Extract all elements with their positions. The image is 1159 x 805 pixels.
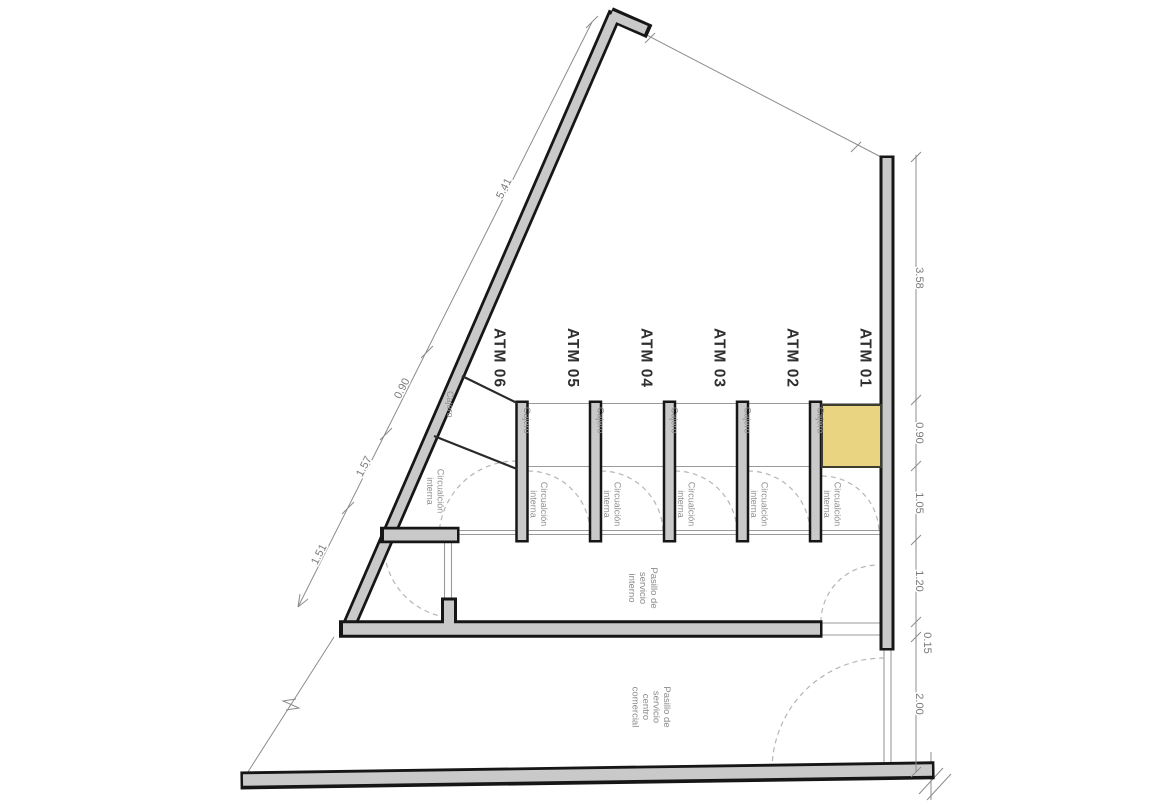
left-dim-label-1-51: 1.51 <box>309 542 329 567</box>
door-swing-atm06 <box>439 461 516 538</box>
circulation-label-atm04-line1: Circualción <box>613 482 623 527</box>
boundary-break-symbol <box>283 699 299 710</box>
right-dim-label-1-20: 1.20 <box>913 570 925 591</box>
dimension-chain-left: 5.41 0.90 1.57 1.51 <box>298 16 598 607</box>
circulation-label-atm06-line2: interna <box>425 477 435 505</box>
internal-corridor-label-line2: servicio <box>637 572 648 604</box>
walls <box>241 13 935 781</box>
circulation-label-atm03-line2: interna <box>676 490 686 518</box>
internal-corridor-label-line1: Pasillo de <box>648 567 659 608</box>
circulation-label-atm01-line2: interna <box>822 490 832 518</box>
dimension-chain-right: 3.58 0.90 1.05 1.20 0.15 2.00 <box>911 152 933 777</box>
cajero-label-atm01: Cajero <box>816 407 826 434</box>
right-dim-label-0-90: 0.90 <box>913 422 925 443</box>
circulation-label-atm02-line2: interna <box>749 490 759 518</box>
left-dim-tick-1 <box>421 346 433 358</box>
top-boundary-line <box>616 19 881 157</box>
left-dim-label-1-57: 1.57 <box>354 454 374 479</box>
atm06-upper-boundary <box>462 376 517 403</box>
cajero-label-atm04: Cajero <box>596 407 606 434</box>
cajero-label-atm03: Cajero <box>670 407 680 434</box>
atm-04-label: ATM 04 <box>638 328 655 388</box>
cajero-label-atm06: Cajero <box>445 391 455 418</box>
lower-left-boundary-line <box>246 637 334 775</box>
right-dim-label-3-58: 3.58 <box>913 267 925 288</box>
atm06-lower-boundary <box>434 436 517 469</box>
atm-06-label: ATM 06 <box>491 328 508 388</box>
left-dim-tick-0 <box>586 16 598 28</box>
atm-05-label: ATM 05 <box>564 328 581 388</box>
atm-01-highlight[interactable] <box>822 405 881 467</box>
mall-corridor-label-line2: servicio <box>651 691 662 723</box>
door-swing-mall-corridor <box>772 658 884 770</box>
right-dim-label-0-15: 0.15 <box>921 632 933 653</box>
circulation-label-atm03-line1: Circualción <box>687 482 697 527</box>
cajero-label-atm05: Cajero <box>522 407 532 434</box>
circulation-label-atm06-line1: Circualción <box>436 469 446 514</box>
atm-03-label: ATM 03 <box>711 328 728 388</box>
mall-corridor-label-line3: centro <box>640 694 651 720</box>
left-dim-label-0-90: 0.90 <box>392 376 412 401</box>
right-dim-label-1-05: 1.05 <box>913 492 925 513</box>
atm-02-label: ATM 02 <box>784 328 801 388</box>
left-dim-tick-3 <box>342 502 354 514</box>
atm-01-label: ATM 01 <box>857 328 874 388</box>
circulation-label-atm02-line1: Circualción <box>760 482 770 527</box>
cajero-label-atm02: Cajero <box>743 407 753 434</box>
floor-plan-canvas: 5.41 0.90 1.57 1.51 3.58 0.90 1.05 1.20 … <box>0 0 1159 805</box>
circulation-label-atm05-line1: Circualción <box>539 482 549 527</box>
mall-corridor-label-line4: comercial <box>630 687 641 728</box>
right-dim-label-2-00: 2.00 <box>913 693 925 714</box>
left-dim-tick-2 <box>380 428 392 440</box>
circulation-label-atm01-line1: Circualción <box>833 482 843 527</box>
atm-labels: ATM 06 ATM 05 ATM 04 ATM 03 ATM 02 ATM 0… <box>491 328 874 388</box>
circulation-label-atm04-line2: interna <box>602 490 612 518</box>
left-dim-label-5-41: 5.41 <box>494 176 514 201</box>
room-labels: Cajero Cajero Cajero Cajero Cajero Cajer… <box>425 391 843 728</box>
internal-corridor-label-line3: interno <box>626 573 637 602</box>
door-swing-middle-wall <box>821 565 878 622</box>
floor-plan-page: 5.41 0.90 1.57 1.51 3.58 0.90 1.05 1.20 … <box>0 0 1159 805</box>
mall-corridor-label-line1: Pasillo de <box>661 686 672 727</box>
circulation-label-atm05-line2: interna <box>529 490 539 518</box>
